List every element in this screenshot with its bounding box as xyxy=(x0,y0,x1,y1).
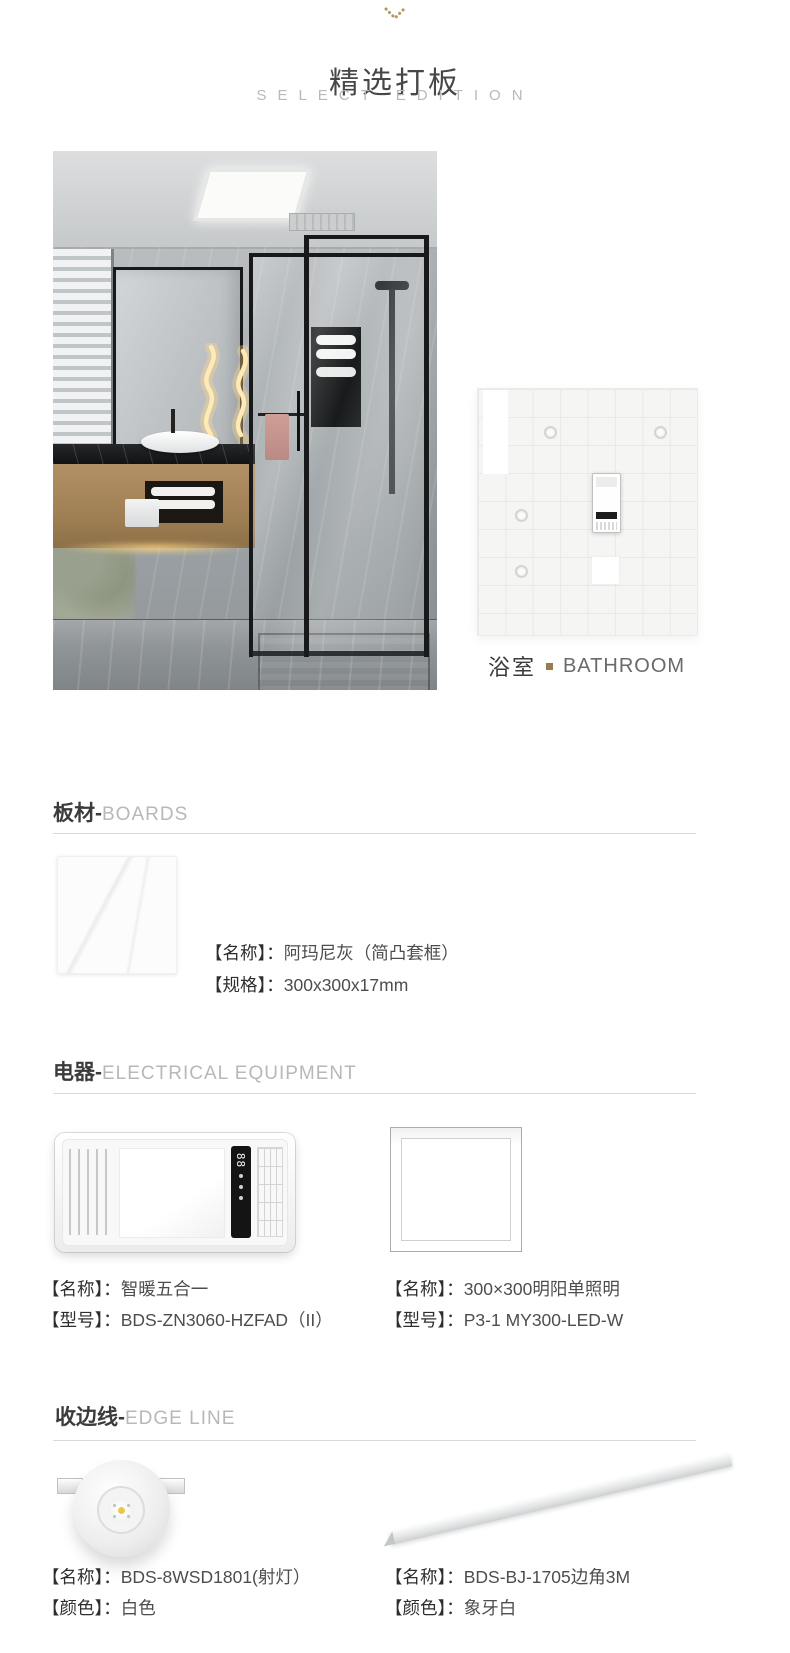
display-digits: 88 xyxy=(235,1153,248,1168)
heater-caption: 【名称】：智暖五合一 【型号】：BDS-ZN3060-HZFAD（II） xyxy=(42,1274,333,1336)
name-label: 【名称】： xyxy=(385,1567,464,1587)
downlight-marker xyxy=(515,565,528,578)
room-label-zh: 浴室 xyxy=(488,650,536,682)
heater-vent-slats xyxy=(69,1149,113,1235)
led-dot xyxy=(118,1507,125,1514)
towel xyxy=(151,500,215,509)
edge-strip-caption: 【名称】：BDS-BJ-1705边角3M 【颜色】：象牙白 xyxy=(385,1562,630,1624)
heater-product-image: 88 xyxy=(55,1133,295,1252)
edge-strip-bar xyxy=(389,1453,733,1544)
section-header-electrical: 电器- ELECTRICAL EQUIPMENT xyxy=(53,1056,357,1086)
glass-frame xyxy=(249,255,253,657)
name-value: 智暖五合一 xyxy=(121,1279,209,1299)
room-label-en: BATHROOM xyxy=(563,655,685,678)
chevron-down-icon xyxy=(0,7,790,26)
product-name-line: 【名称】：BDS-BJ-1705边角3M xyxy=(385,1562,630,1593)
bathroom-photo xyxy=(53,151,437,690)
divider xyxy=(53,833,696,834)
section-title-en: BOARDS xyxy=(102,804,188,826)
heater-unit-marker xyxy=(592,473,621,533)
downlight-marker xyxy=(515,509,528,522)
glass-frame xyxy=(249,651,429,656)
glass-frame xyxy=(304,235,429,239)
page-subtitle: SELECT EDITION xyxy=(0,87,790,104)
towel xyxy=(151,487,215,496)
name-label: 【名称】： xyxy=(205,943,284,963)
model-value: P3-1 MY300-LED-W xyxy=(464,1310,624,1330)
section-title-zh: 电器- xyxy=(53,1056,102,1086)
light-tile-marker xyxy=(483,390,508,474)
name-label: 【名称】： xyxy=(42,1279,121,1299)
spec-value: 300x300x17mm xyxy=(284,975,409,995)
section-title-en: ELECTRICAL EQUIPMENT xyxy=(102,1063,357,1085)
color-label: 【颜色】： xyxy=(385,1598,464,1618)
section-header-boards: 板材- BOARDS xyxy=(53,797,188,827)
product-name-line: 【名称】：300×300明阳单照明 xyxy=(385,1274,623,1305)
model-value: BDS-ZN3060-HZFAD（II） xyxy=(121,1310,333,1330)
glass-frame xyxy=(249,253,429,257)
led-panel-product-image xyxy=(390,1127,522,1252)
product-model-line: 【型号】：BDS-ZN3060-HZFAD（II） xyxy=(42,1305,333,1336)
name-label: 【名称】： xyxy=(385,1279,464,1299)
downlight-marker xyxy=(654,426,667,439)
product-name-line: 【名称】：BDS-8WSD1801(射灯） xyxy=(42,1562,310,1593)
model-label: 【型号】： xyxy=(42,1310,121,1330)
glass-frame xyxy=(424,239,429,657)
door-handle xyxy=(297,391,300,451)
control-icon xyxy=(239,1196,243,1200)
name-value: 阿玛尼灰（简凸套框） xyxy=(284,943,459,963)
product-color-line: 【颜色】：象牙白 xyxy=(385,1593,630,1624)
wash-basin xyxy=(141,431,219,453)
spotlight-product-image xyxy=(57,1452,185,1568)
board-product-image xyxy=(57,856,177,974)
ceiling-panel-diagram xyxy=(477,388,698,636)
board-caption: 【名称】：阿玛尼灰（简凸套框） 【规格】：300x300x17mm xyxy=(205,937,459,1001)
separator-square xyxy=(546,663,553,670)
edge-strip-product-image xyxy=(380,1448,745,1556)
heater-control-display: 88 xyxy=(231,1146,251,1238)
name-value: BDS-8WSD1801(射灯） xyxy=(121,1567,311,1587)
name-value: 300×300明阳单照明 xyxy=(464,1279,620,1299)
spec-label: 【规格】： xyxy=(205,975,284,995)
name-value: BDS-BJ-1705边角3M xyxy=(464,1567,630,1587)
name-label: 【名称】： xyxy=(42,1567,121,1587)
section-title-zh: 板材- xyxy=(53,797,102,827)
divider xyxy=(53,1093,696,1094)
downlight-marker xyxy=(544,426,557,439)
led-panel-inner xyxy=(401,1138,511,1241)
divider xyxy=(53,1440,696,1441)
product-spec-line: 【规格】：300x300x17mm xyxy=(205,969,459,1001)
product-color-line: 【颜色】：白色 xyxy=(42,1593,310,1624)
section-header-edge-line: 收边线- EDGE LINE xyxy=(55,1401,235,1431)
heater-grille xyxy=(257,1147,283,1237)
faucet xyxy=(171,409,175,433)
control-icon xyxy=(239,1185,243,1189)
product-model-line: 【型号】：P3-1 MY300-LED-W xyxy=(385,1305,623,1336)
product-name-line: 【名称】：阿玛尼灰（简凸套框） xyxy=(205,937,459,969)
glass-frame xyxy=(304,235,309,657)
color-label: 【颜色】： xyxy=(42,1598,121,1618)
spotlight-caption: 【名称】：BDS-8WSD1801(射灯） 【颜色】：白色 xyxy=(42,1562,310,1624)
led-panel-caption: 【名称】：300×300明阳单照明 【型号】：P3-1 MY300-LED-W xyxy=(385,1274,623,1336)
product-name-line: 【名称】：智暖五合一 xyxy=(42,1274,333,1305)
room-caption: 浴室 BATHROOM xyxy=(477,650,696,682)
ceiling-vent xyxy=(289,213,355,231)
section-title-en: EDGE LINE xyxy=(125,1408,235,1430)
heater-light-panel xyxy=(119,1148,225,1238)
hand-towel xyxy=(125,499,159,527)
under-cabinet-light xyxy=(57,541,252,555)
pink-towel xyxy=(265,414,289,460)
model-label: 【型号】： xyxy=(385,1310,464,1330)
select-edition-page: 精选打板 SELECT EDITION xyxy=(0,0,790,1653)
control-icon xyxy=(239,1174,243,1178)
section-title-zh: 收边线- xyxy=(55,1401,125,1431)
color-value: 白色 xyxy=(121,1598,156,1618)
color-value: 象牙白 xyxy=(464,1598,517,1618)
light-tile-marker xyxy=(592,557,619,584)
